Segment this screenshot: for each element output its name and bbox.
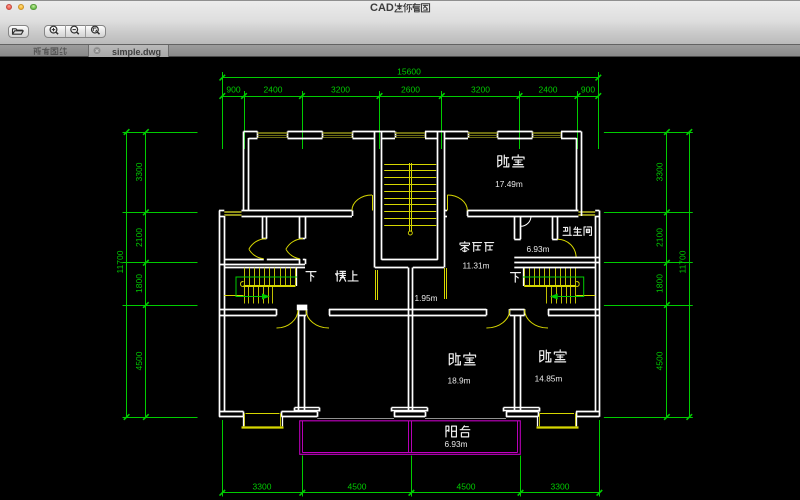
svg-text:11700: 11700 [678,250,688,273]
svg-text:3300: 3300 [134,162,144,181]
svg-text:3300: 3300 [253,481,272,491]
svg-text:11700: 11700 [115,250,125,273]
svg-text:4500: 4500 [134,351,144,370]
svg-text:2100: 2100 [655,228,665,247]
svg-text:4500: 4500 [348,481,367,491]
svg-text:15600: 15600 [397,67,421,77]
svg-text:3200: 3200 [471,85,490,95]
svg-text:1800: 1800 [655,274,665,293]
svg-text:14.85m: 14.85m [535,374,563,384]
svg-text:900: 900 [581,85,595,95]
svg-text:2400: 2400 [539,85,558,95]
svg-text:2600: 2600 [401,85,420,95]
svg-text:11.31m: 11.31m [462,261,489,271]
svg-text:1800: 1800 [134,274,144,293]
svg-text:6.93m: 6.93m [444,439,467,449]
svg-text:4500: 4500 [457,481,476,491]
svg-text:2400: 2400 [264,85,283,95]
svg-text:1.95m: 1.95m [414,293,437,303]
svg-text:2100: 2100 [134,228,144,247]
svg-text:17.49m: 17.49m [495,179,523,189]
svg-text:6.93m: 6.93m [526,244,549,254]
svg-text:900: 900 [226,85,240,95]
svg-text:18.9m: 18.9m [447,376,470,386]
svg-text:4500: 4500 [655,351,665,370]
svg-text:3300: 3300 [551,481,570,491]
svg-text:3300: 3300 [655,162,665,181]
svg-text:3200: 3200 [331,85,350,95]
